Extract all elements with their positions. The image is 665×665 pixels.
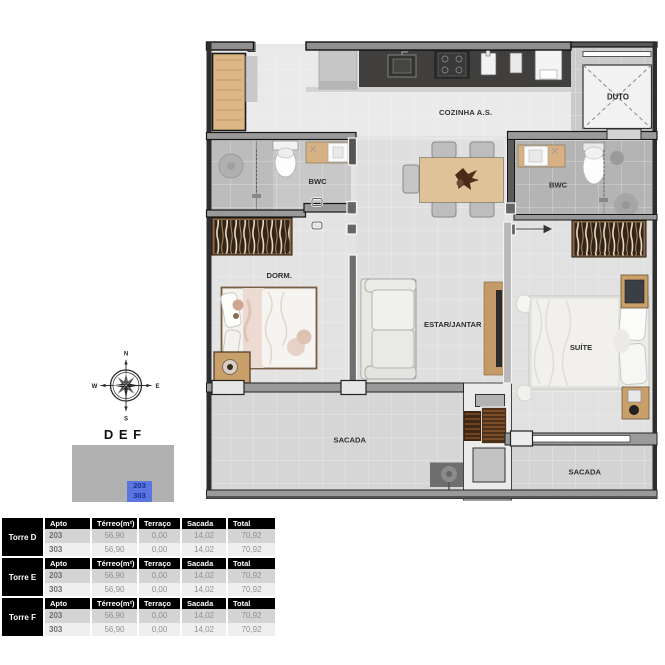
svg-text:ESTAR/JANTAR: ESTAR/JANTAR — [424, 320, 482, 329]
svg-text:N: N — [124, 352, 128, 358]
svg-text:SACADA: SACADA — [569, 468, 602, 477]
svg-text:SUÍTE: SUÍTE — [570, 343, 592, 352]
svg-text:E: E — [155, 384, 159, 390]
svg-text:BWC: BWC — [309, 177, 328, 186]
svg-text:DORM.: DORM. — [267, 271, 292, 280]
svg-text:BWC: BWC — [549, 181, 568, 190]
svg-text:W: W — [92, 384, 98, 390]
svg-text:DUTO: DUTO — [607, 93, 629, 102]
svg-text:COZINHA A.S.: COZINHA A.S. — [439, 108, 492, 117]
svg-text:S: S — [124, 417, 128, 423]
svg-text:SACADA: SACADA — [334, 436, 367, 445]
